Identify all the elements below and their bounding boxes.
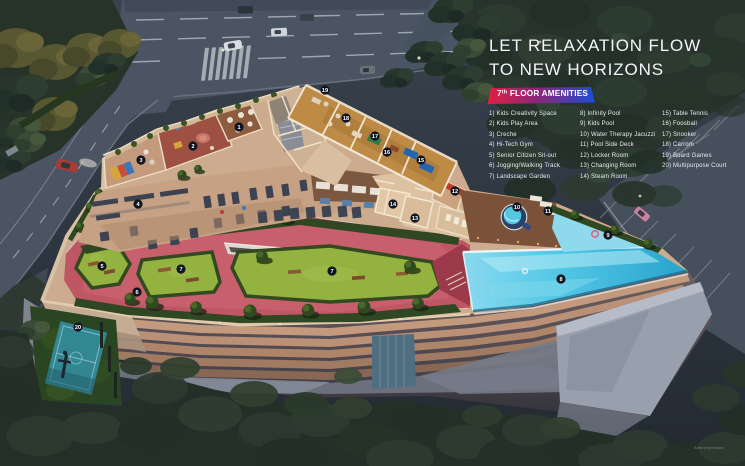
svg-text:17: 17 (372, 134, 378, 140)
svg-text:20: 20 (75, 325, 81, 331)
svg-text:1: 1 (237, 125, 240, 131)
svg-text:14: 14 (390, 202, 397, 208)
svg-text:11: 11 (545, 209, 551, 215)
svg-text:7: 7 (330, 269, 333, 275)
svg-text:13: 13 (412, 216, 418, 222)
svg-text:3: 3 (139, 158, 142, 164)
svg-text:18: 18 (343, 116, 349, 122)
svg-text:8: 8 (559, 277, 562, 283)
svg-text:12: 12 (452, 189, 458, 195)
svg-text:10: 10 (514, 205, 520, 211)
svg-text:15: 15 (418, 158, 424, 164)
svg-text:16: 16 (384, 150, 390, 156)
svg-text:5: 5 (100, 264, 103, 270)
svg-text:19: 19 (322, 88, 328, 94)
svg-text:9: 9 (606, 233, 609, 239)
svg-text:6: 6 (135, 290, 138, 296)
svg-text:Artist Impression: Artist Impression (694, 445, 724, 450)
svg-text:7: 7 (179, 267, 182, 273)
svg-text:2: 2 (191, 144, 194, 150)
